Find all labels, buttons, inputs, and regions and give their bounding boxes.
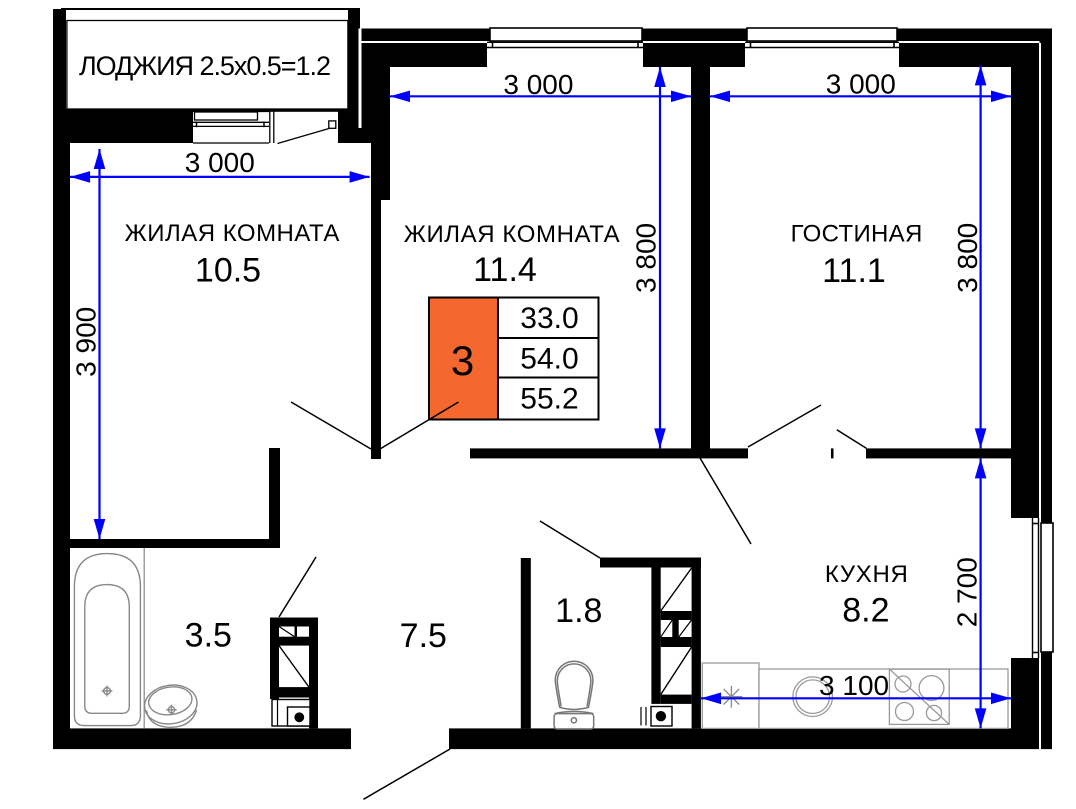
svg-text:10.5: 10.5: [195, 251, 261, 289]
svg-text:3.5: 3.5: [185, 617, 232, 655]
svg-text:3 100: 3 100: [819, 670, 889, 701]
svg-text:11.4: 11.4: [473, 251, 537, 289]
svg-text:ЖИЛАЯ КОМНАТА: ЖИЛАЯ КОМНАТА: [404, 221, 620, 248]
svg-text:КУХНЯ: КУХНЯ: [825, 561, 908, 588]
svg-text:3 800: 3 800: [952, 223, 983, 293]
svg-text:54.0: 54.0: [520, 342, 578, 375]
svg-text:3 800: 3 800: [631, 223, 662, 293]
svg-text:3 000: 3 000: [826, 69, 896, 100]
svg-text:3: 3: [451, 337, 474, 384]
svg-text:7.5: 7.5: [400, 617, 447, 655]
svg-text:ГОСТИНАЯ: ГОСТИНАЯ: [791, 220, 923, 247]
svg-text:11.1: 11.1: [822, 252, 886, 290]
svg-text:2 700: 2 700: [951, 557, 982, 627]
svg-text:1.8: 1.8: [555, 592, 602, 630]
svg-text:ЖИЛАЯ КОМНАТА: ЖИЛАЯ КОМНАТА: [125, 220, 340, 247]
svg-text:ЛОДЖИЯ 2.5х0.5=1.2: ЛОДЖИЯ 2.5х0.5=1.2: [79, 51, 331, 81]
svg-text:3 000: 3 000: [185, 147, 255, 178]
svg-text:33.0: 33.0: [520, 302, 578, 335]
svg-text:3 000: 3 000: [503, 69, 573, 100]
svg-text:55.2: 55.2: [520, 383, 578, 416]
svg-text:3 900: 3 900: [71, 307, 102, 377]
svg-text:8.2: 8.2: [842, 591, 889, 629]
